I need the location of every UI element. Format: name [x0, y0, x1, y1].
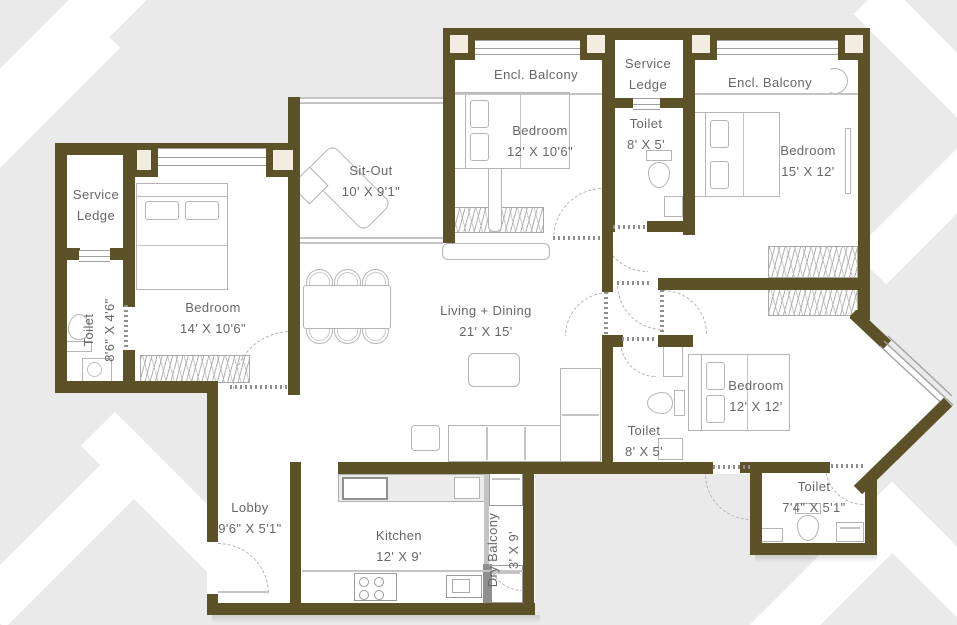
label-dry-balcony: Dry Balcony 3' X 9' — [482, 490, 526, 610]
sitout-edge-line — [300, 242, 443, 244]
bed-symbol — [136, 183, 228, 290]
wall-segment — [443, 40, 455, 243]
chevron-stripe — [0, 460, 139, 625]
column-block — [130, 143, 158, 177]
entrance-door-leaf — [218, 591, 268, 593]
column-block — [838, 28, 870, 60]
label-kitchen: Kitchen 12' X 9' — [339, 525, 459, 567]
shower-tray-line — [840, 527, 860, 529]
label-encl-balcony-right: Encl. Balcony — [705, 72, 835, 93]
counter-appliance-symbol — [454, 477, 480, 499]
bed-part — [743, 113, 744, 196]
wall-segment — [750, 543, 877, 555]
wall-segment — [55, 143, 67, 393]
shower-tray-symbol — [836, 522, 864, 542]
wall-segment — [658, 335, 693, 347]
wall-segment — [602, 232, 613, 292]
kitchen-sink-basin — [452, 579, 470, 593]
coffee-table-symbol — [468, 353, 520, 387]
door-threshold — [613, 225, 647, 229]
sofa-cushion-line — [562, 414, 599, 416]
wc-bowl — [648, 162, 670, 188]
label-toilet-bottom: Toilet 7'4" X 5'1" — [754, 476, 874, 518]
door-swing-arc — [705, 474, 751, 520]
column-block — [266, 143, 300, 177]
wc-bowl — [797, 515, 819, 541]
wall-segment — [123, 260, 135, 307]
window-symbol — [79, 250, 110, 262]
label-living-dining: Living + Dining 21' X 15' — [406, 300, 566, 342]
fridge-symbol — [342, 477, 388, 500]
door-threshold — [617, 281, 650, 285]
washing-machine-line — [492, 478, 520, 480]
bed-part — [137, 184, 227, 197]
wall-segment — [613, 462, 713, 474]
bathroom-sink-symbol — [663, 346, 683, 377]
sitout-edge-line — [300, 102, 443, 104]
column-block — [580, 28, 612, 60]
wall-segment — [55, 248, 80, 260]
wall-segment — [658, 98, 683, 108]
plan-shadow — [755, 555, 877, 563]
stove-burner — [359, 577, 369, 587]
wall-segment — [647, 221, 683, 232]
label-sit-out: Sit-Out 10' X 9'1" — [311, 160, 431, 202]
sofa-cushion-line — [524, 427, 526, 460]
wall-segment — [740, 462, 830, 473]
column-block — [685, 28, 717, 60]
label-bedroom-3: Bedroom 15' X 12' — [748, 140, 868, 182]
wardrobe-symbol — [768, 289, 858, 316]
toilet-wc-symbol — [646, 150, 672, 190]
wall-segment — [658, 278, 858, 290]
sitout-edge-line — [300, 237, 443, 239]
wc-tank — [674, 390, 685, 416]
floor-plan: Service Ledge Toilet 8'6" X 4'6" Bedroom… — [0, 0, 957, 625]
tv-console-symbol — [442, 243, 550, 260]
window-symbol — [633, 98, 660, 110]
label-toilet-mid: Toilet 8' X 5' — [606, 113, 686, 155]
pillow-symbol — [710, 161, 729, 189]
door-threshold — [124, 305, 128, 350]
label-toilet-left: Toilet 8'6" X 4'6" — [78, 270, 122, 390]
bay-window — [850, 310, 957, 495]
pillow-symbol — [710, 120, 729, 148]
pillow-symbol — [145, 201, 179, 220]
stove-burner — [374, 577, 384, 587]
sitout-edge-line — [300, 97, 443, 99]
window-symbol — [158, 148, 266, 166]
wall-segment — [110, 248, 135, 260]
shower-symbol — [664, 196, 683, 217]
balcony-divider-line — [695, 93, 858, 95]
bed-part — [137, 245, 227, 246]
dining-table-symbol — [303, 285, 391, 329]
stove-burner — [374, 590, 384, 600]
door-threshold — [660, 290, 664, 333]
wc-bowl — [647, 392, 673, 414]
label-service-ledge-mid: Service Ledge — [615, 53, 681, 95]
wardrobe-symbol — [768, 246, 858, 278]
window-symbol — [717, 40, 838, 55]
label-bedroom-1: Bedroom 14' X 10'6" — [153, 297, 273, 339]
label-service-ledge-left: Service Ledge — [64, 184, 128, 226]
column-block — [443, 28, 475, 60]
label-lobby: Lobby 9'6" X 5'1" — [195, 497, 305, 539]
door-threshold — [622, 337, 655, 341]
label-bedroom-2: Bedroom 12' X 10'6" — [475, 120, 605, 162]
door-threshold — [713, 465, 750, 469]
door-threshold — [831, 464, 863, 468]
stove-burner — [359, 590, 369, 600]
wall-segment — [288, 97, 300, 395]
door-threshold — [230, 385, 288, 389]
pillow-symbol — [185, 201, 219, 220]
window-symbol — [475, 40, 580, 55]
door-threshold — [553, 236, 602, 240]
sofa-symbol — [448, 425, 562, 462]
toilet-wc-symbol — [645, 390, 685, 416]
wall-segment — [338, 462, 613, 474]
sofa-cushion-line — [486, 427, 488, 460]
plan-shadow — [212, 615, 540, 623]
side-table-symbol — [411, 425, 440, 451]
label-toilet-right: Toilet 8' X 5' — [604, 420, 684, 462]
wall-segment — [443, 28, 870, 40]
label-encl-balcony-left: Encl. Balcony — [471, 64, 601, 85]
label-bedroom-4: Bedroom 12' X 12' — [696, 375, 816, 417]
balcony-divider-line — [455, 93, 603, 95]
door-threshold — [604, 292, 608, 335]
